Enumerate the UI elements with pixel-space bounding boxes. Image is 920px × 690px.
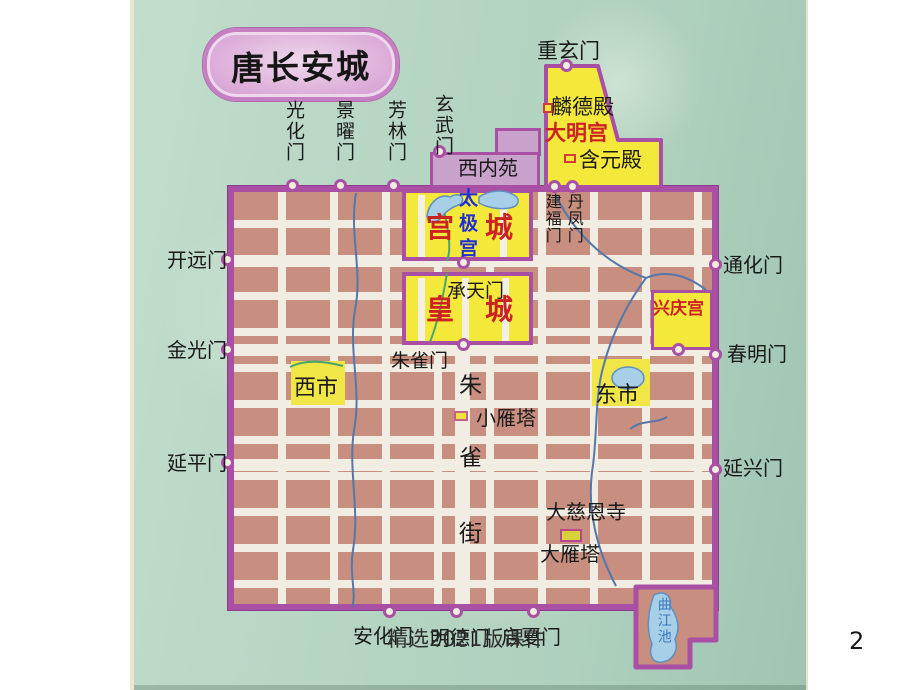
qixia-gate-icon: [527, 605, 540, 618]
zhuque-gate-icon: [457, 338, 470, 351]
street-label-jie: 街: [459, 522, 482, 546]
region-label-imperial-city-right: 城: [485, 295, 513, 324]
gate-label-kaiyuanmen: 开远门: [153, 250, 227, 271]
gate-label-danfengmen: 丹凤门: [565, 193, 582, 244]
street-label-zhu: 朱: [459, 374, 482, 398]
slide-page-number: 2: [849, 629, 864, 654]
region-label-palace-city-left: 宫: [426, 213, 454, 242]
yanxing-gate-icon: [709, 463, 722, 476]
region-label-palace-city-right: 城: [485, 213, 513, 242]
gate-label-jinguangmen: 金光门: [153, 340, 227, 361]
region-label-taiji-palace: 太极宫: [456, 188, 476, 263]
presentation-slide: 唐长安城 光化门 景曜门 芳林门 玄武门 重玄门 麟德殿 大明宫 含元殿 西内苑…: [0, 0, 920, 690]
region-label-west-inner-park: 西内苑: [458, 158, 518, 179]
gate-label-jianfumen: 建福门: [543, 193, 560, 244]
hanyuan-hall-marker-icon: [564, 154, 576, 163]
gate-label-zhuquemen: 朱雀门: [391, 352, 448, 372]
slide-footer-text: 精选2021版课件: [387, 628, 545, 650]
street-label-que: 雀: [459, 446, 482, 470]
landmark-label-big-goose-pagoda: 大雁塔: [540, 544, 600, 565]
small-goose-pagoda-marker-icon: [454, 411, 468, 421]
landmark-label-small-goose-pagoda: 小雁塔: [476, 408, 536, 429]
map-title: 唐长安城: [231, 39, 372, 89]
xingqing-gate-icon: [672, 343, 685, 356]
region-label-daming-palace: 大明宫: [545, 122, 608, 144]
gate-label-fanglinmen: 芳林门: [385, 100, 405, 163]
gate-label-chunmingmen: 春明门: [727, 344, 787, 365]
region-label-hanyuan-hall: 含元殿: [579, 149, 642, 171]
tonghua-gate-icon: [709, 258, 722, 271]
region-label-imperial-city-left: 皇: [426, 295, 454, 324]
big-goose-pagoda-marker-icon: [560, 529, 582, 542]
gate-label-tonghuamen: 通化门: [723, 255, 783, 276]
gate-label-jingyaomen: 景曜门: [333, 100, 353, 163]
chunming-gate-icon: [709, 348, 722, 361]
landmark-label-daci-en-temple: 大慈恩寺: [546, 502, 626, 523]
landmark-label-qujiang-pool: 曲江池: [656, 597, 671, 645]
anhua-gate-icon: [383, 605, 396, 618]
gate-label-yanxingmen: 延兴门: [723, 458, 783, 479]
gate-label-xuanwumen: 玄武门: [432, 94, 452, 157]
jianfu-gate-icon: [548, 180, 561, 193]
region-label-west-market: 西市: [294, 377, 338, 400]
fanglin-gate-icon: [387, 179, 400, 192]
palace-street: [418, 195, 425, 257]
region-label-linde-hall: 麟德殿: [551, 96, 614, 118]
gate-label-chongxuanmen: 重玄门: [537, 40, 600, 62]
map-title-cartouche: 唐长安城: [203, 28, 399, 101]
imperial-street: [418, 278, 425, 341]
guanghua-gate-icon: [286, 179, 299, 192]
mingde-gate-icon: [450, 605, 463, 618]
jingyao-gate-icon: [334, 179, 347, 192]
region-label-east-market: 东市: [595, 384, 639, 407]
gate-label-guanghuamen: 光化门: [283, 100, 303, 163]
danfeng-gate-icon: [566, 180, 579, 193]
region-label-xingqing-palace: 兴庆宫: [653, 301, 704, 319]
gate-label-yanpingmen: 延平门: [153, 453, 227, 474]
